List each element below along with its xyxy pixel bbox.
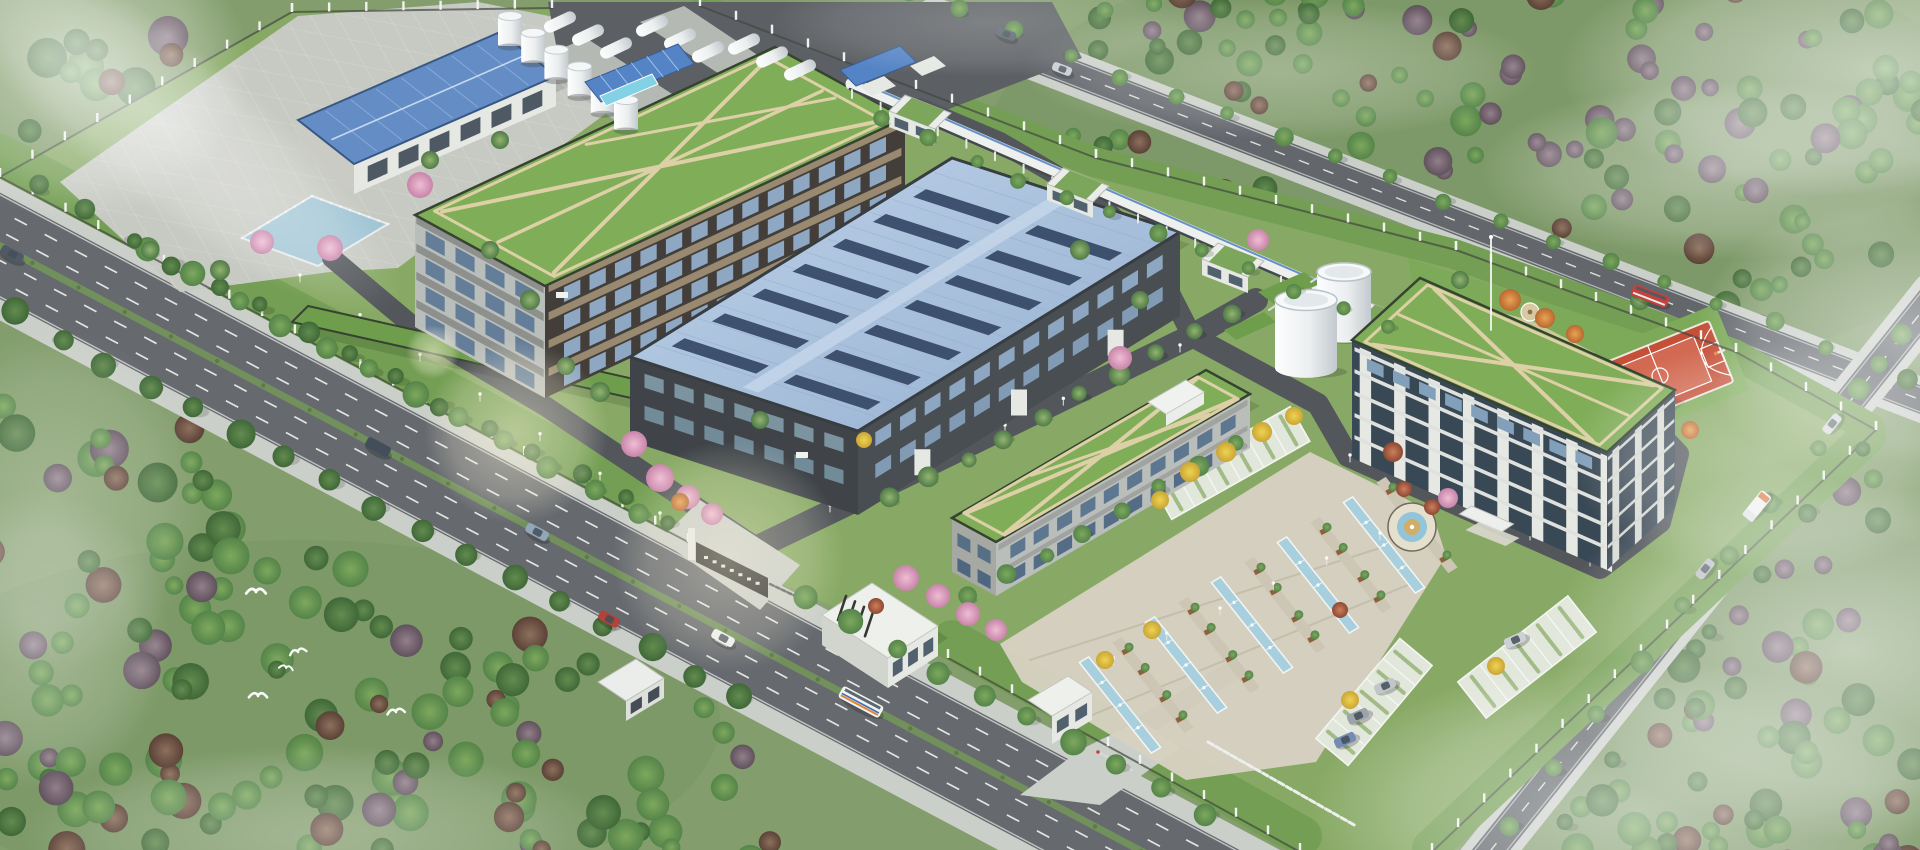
atmosphere-layer	[0, 0, 1920, 850]
rendering-canvas	[0, 0, 1920, 850]
light-wash	[0, 0, 1920, 850]
industrial-park-aerial-rendering	[0, 0, 1920, 850]
